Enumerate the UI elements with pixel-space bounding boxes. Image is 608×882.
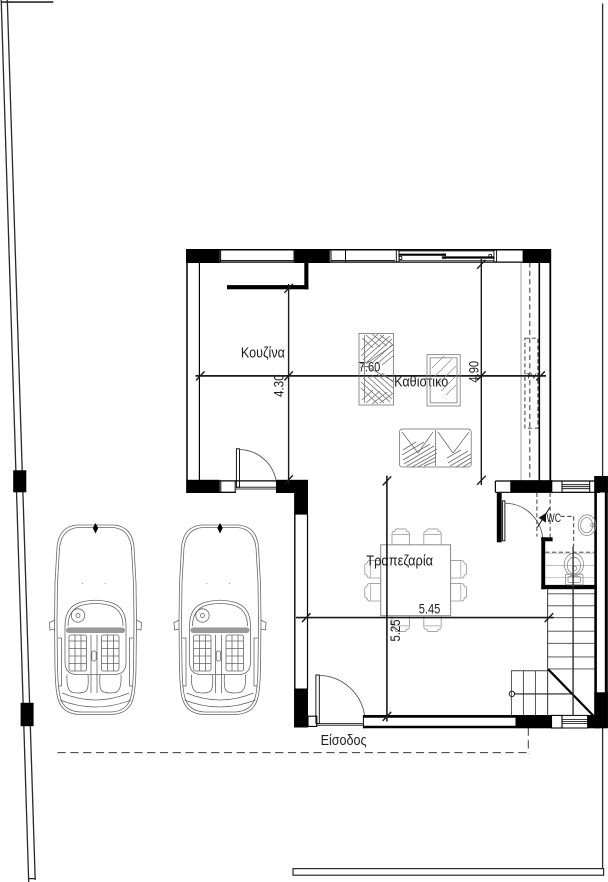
svg-text:5.25: 5.25 — [388, 620, 403, 642]
svg-text:TV: TV — [526, 371, 537, 380]
svg-text:4.30: 4.30 — [272, 374, 287, 397]
svg-text:Είσοδος: Είσοδος — [321, 732, 367, 749]
svg-text:Τραπεζαρία: Τραπεζαρία — [366, 552, 433, 569]
svg-text:Κουζίνα: Κουζίνα — [241, 344, 285, 361]
svg-text:WC: WC — [547, 511, 562, 525]
svg-text:4.90: 4.90 — [466, 361, 481, 383]
svg-text:5.45: 5.45 — [419, 602, 441, 617]
